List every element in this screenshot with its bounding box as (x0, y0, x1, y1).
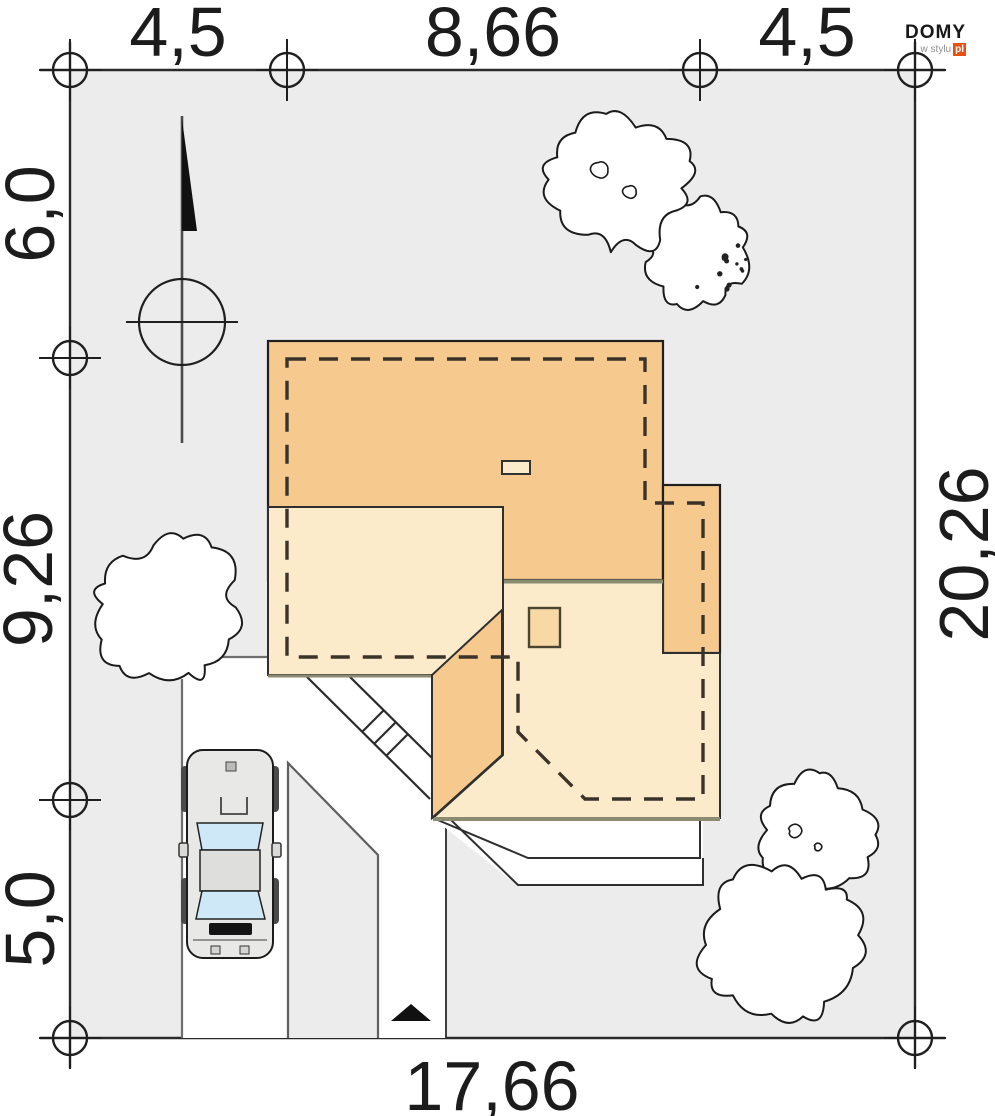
car-top-view (179, 750, 281, 958)
dim-top-right: 4,5 (758, 0, 855, 71)
brand-logo: DOMY w stylu pl (880, 23, 966, 56)
dim-top-left: 4,5 (129, 0, 226, 71)
car-windshield (196, 891, 265, 919)
chimney-upper (502, 461, 530, 474)
dim-right: 20,26 (925, 466, 995, 641)
car-grille (209, 923, 252, 935)
brand-tld-badge: pl (953, 43, 966, 56)
dim-left-lower: 5,0 (0, 870, 69, 967)
car-rear-detail (226, 762, 236, 771)
roof-wing-right (663, 485, 720, 653)
brand-tagline: w stylu (921, 45, 952, 55)
tree-stipple (695, 285, 699, 289)
car-mirror-left (179, 843, 188, 857)
dim-left-upper: 6,0 (0, 165, 69, 262)
car-rear-window (197, 823, 263, 850)
brand-name: DOMY (880, 23, 966, 42)
dim-bottom: 17,66 (404, 1047, 579, 1116)
car-roof (200, 850, 260, 891)
tree-stipple (744, 258, 747, 261)
tree-stipple (717, 271, 722, 276)
tree-stipple (736, 243, 741, 248)
site-plan-page: 4,5 8,66 4,5 6,0 9,26 5,0 20,26 17,66 DO… (0, 0, 995, 1116)
site-plan-drawing: 4,5 8,66 4,5 6,0 9,26 5,0 20,26 17,66 (0, 0, 995, 1116)
tree-stipple (727, 283, 732, 288)
tree-stipple (741, 269, 745, 273)
tree-stipple (724, 259, 729, 264)
car-mirror-right (272, 843, 281, 857)
dim-top-center: 8,66 (425, 0, 561, 71)
dim-left-middle: 9,26 (0, 511, 67, 647)
chimney-lower (529, 608, 560, 647)
car-headlight-right (240, 946, 249, 954)
car-headlight-left (211, 946, 220, 954)
tree-stipple (735, 262, 738, 265)
